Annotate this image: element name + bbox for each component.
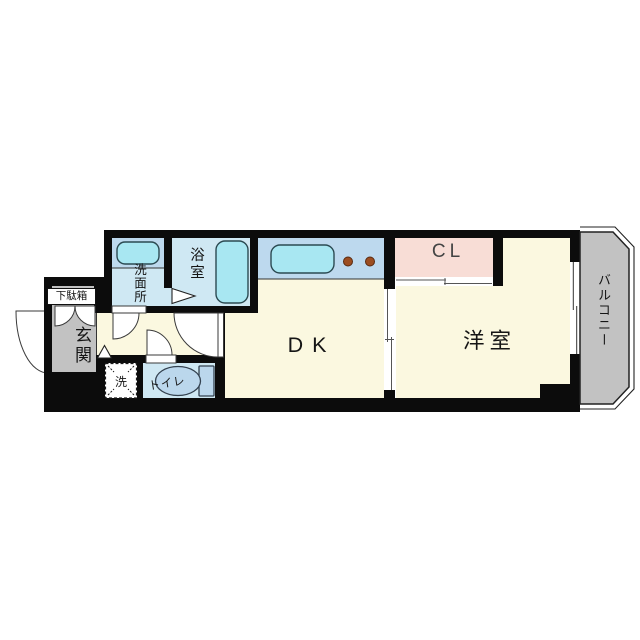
label-closet: CL (412, 241, 480, 263)
wall-segment (96, 363, 105, 412)
label-washroom: 洗面所 (130, 263, 149, 304)
washbasin-sink (117, 242, 159, 264)
entrance-door-arc (16, 311, 48, 373)
wall-segment (164, 238, 172, 288)
label-laundry: 洗 (108, 373, 134, 390)
washroom-door-leaf (112, 306, 146, 313)
floorplan-drawing (0, 0, 640, 640)
label-shoe-cabinet: 下駄箱 (47, 288, 96, 305)
wall-segment (384, 230, 395, 289)
dk-floor-left (224, 313, 258, 398)
wall-segment (44, 277, 104, 286)
wall-segment (250, 230, 258, 313)
label-balcony: バルコニー (594, 273, 613, 348)
closet-sliding-track (395, 277, 493, 286)
wall-segment (384, 390, 395, 403)
label-western-room: 洋室 (443, 324, 531, 355)
wall-segment (137, 355, 143, 398)
label-entrance: 玄関 (69, 326, 94, 366)
stove-burner (344, 257, 353, 266)
wall-segment (94, 286, 112, 313)
bathtub (216, 241, 248, 303)
wall-segment (44, 398, 580, 412)
label-dining-kitchen: DK (267, 333, 347, 358)
kitchen-sink (271, 245, 334, 273)
stove-burner (366, 257, 375, 266)
toilet-door-leaf (146, 355, 176, 363)
wall-segment (104, 230, 580, 238)
label-bathroom: 浴室 (186, 247, 207, 282)
floorplan: 下駄箱 玄関 洗面所 浴室 洗 トイレ DK CL 洋室 バルコニー (0, 0, 640, 640)
balcony-window (570, 262, 580, 354)
toilet-tank (199, 366, 214, 396)
wall-segment (493, 238, 503, 286)
